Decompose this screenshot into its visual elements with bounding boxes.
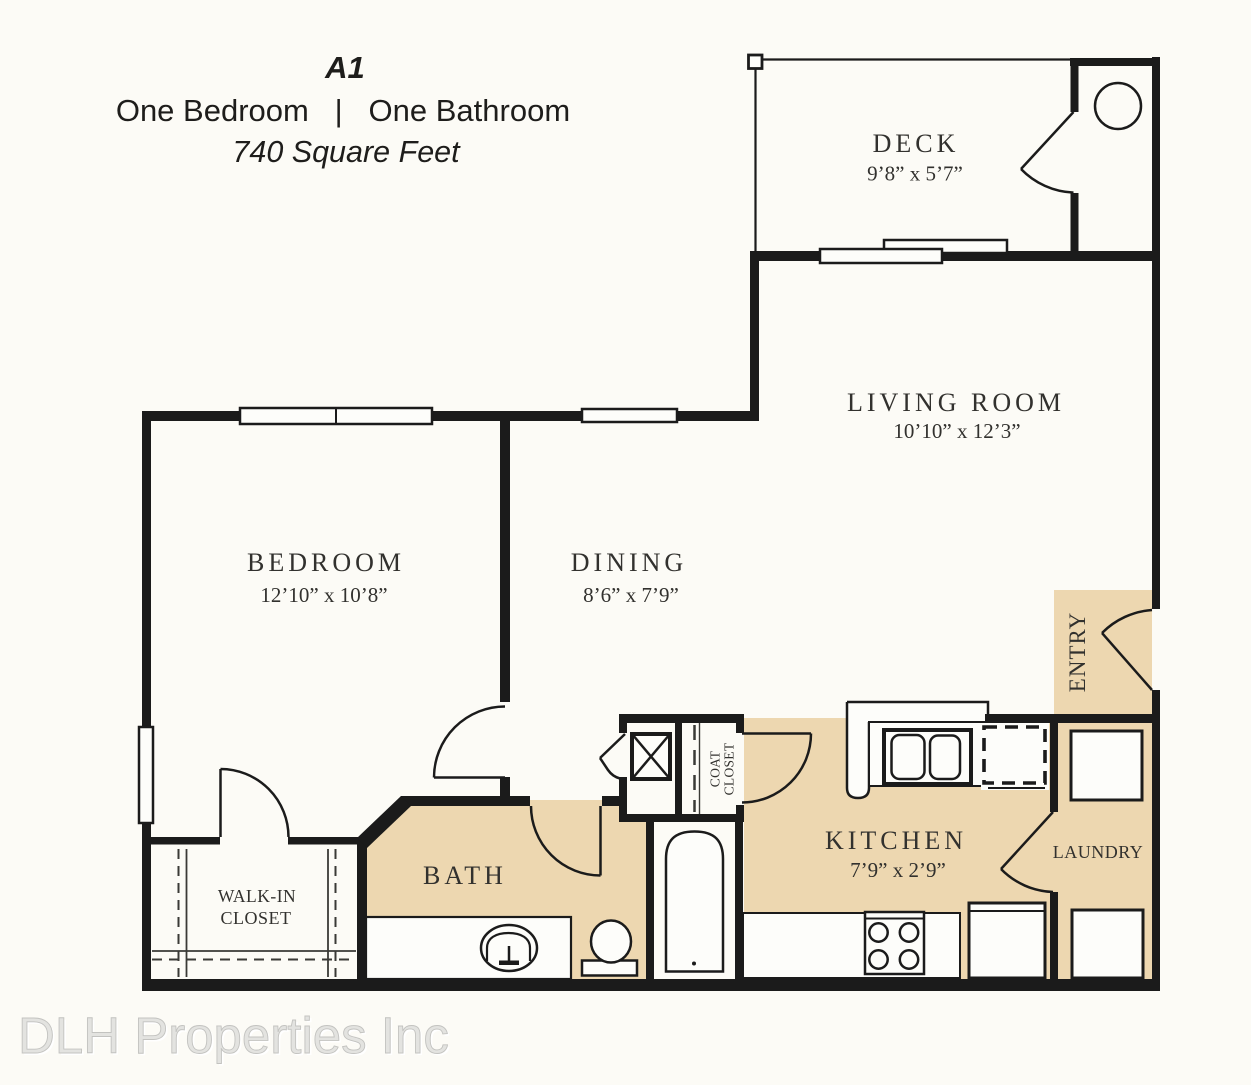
svg-text:ENTRY: ENTRY: [1065, 612, 1090, 692]
svg-text:7’9” x 2’9”: 7’9” x 2’9”: [850, 858, 946, 882]
svg-text:DLH Properties Inc: DLH Properties Inc: [18, 1007, 449, 1064]
svg-text:LIVING ROOM: LIVING ROOM: [847, 388, 1065, 417]
svg-text:One Bedroom | One Bathroom: One Bedroom | One Bathroom: [116, 93, 570, 128]
svg-text:8’6” x 7’9”: 8’6” x 7’9”: [583, 583, 679, 607]
svg-text:740 Square Feet: 740 Square Feet: [232, 135, 461, 169]
svg-text:DECK: DECK: [873, 129, 960, 158]
svg-text:9’8” x 5’7”: 9’8” x 5’7”: [867, 162, 963, 186]
svg-text:10’10” x 12’3”: 10’10” x 12’3”: [893, 419, 1020, 443]
svg-text:BATH: BATH: [423, 861, 507, 890]
svg-text:LAUNDRY: LAUNDRY: [1053, 842, 1144, 862]
svg-text:COAT: COAT: [708, 750, 723, 787]
svg-text:A1: A1: [324, 50, 365, 85]
svg-text:BEDROOM: BEDROOM: [247, 548, 405, 577]
svg-text:12’10” x 10’8”: 12’10” x 10’8”: [260, 583, 387, 607]
svg-text:WALK-IN: WALK-IN: [218, 886, 296, 906]
svg-text:KITCHEN: KITCHEN: [825, 826, 967, 855]
svg-text:DINING: DINING: [571, 548, 687, 577]
svg-text:CLOSET: CLOSET: [722, 742, 737, 795]
svg-text:CLOSET: CLOSET: [220, 908, 291, 928]
